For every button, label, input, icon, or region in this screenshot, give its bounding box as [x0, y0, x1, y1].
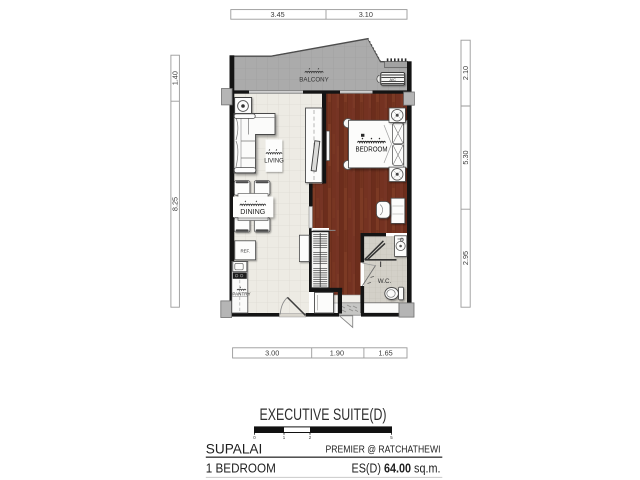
svg-text:1 BEDROOM: 1 BEDROOM: [206, 460, 276, 475]
svg-text:BALCONY: BALCONY: [299, 77, 329, 84]
svg-text:SUPALAI: SUPALAI: [206, 441, 262, 456]
svg-text:3.45: 3.45: [270, 10, 284, 19]
svg-text:5: 5: [390, 435, 393, 440]
svg-text:PANTRY: PANTRY: [232, 291, 250, 296]
svg-text:W.C.: W.C.: [378, 279, 392, 285]
svg-text:1.65: 1.65: [378, 348, 392, 357]
svg-text:2.10: 2.10: [461, 66, 470, 80]
svg-text:REF.: REF.: [240, 248, 250, 253]
svg-text:3.10: 3.10: [359, 10, 373, 19]
svg-text:1.40: 1.40: [171, 71, 180, 85]
svg-text:BEDROOM: BEDROOM: [356, 145, 388, 154]
svg-text:3.00: 3.00: [265, 348, 279, 357]
svg-text:A/C: A/C: [389, 77, 396, 82]
svg-text:5.30: 5.30: [461, 150, 470, 164]
svg-text:LIVING: LIVING: [264, 159, 284, 165]
svg-text:PREMIER @ RATCHATHEWI: PREMIER @ RATCHATHEWI: [326, 445, 441, 456]
svg-text:1.90: 1.90: [330, 348, 344, 357]
svg-text:ES(D) 64.00 sq.m.: ES(D) 64.00 sq.m.: [352, 460, 441, 475]
svg-text:2.95: 2.95: [461, 251, 470, 265]
svg-text:2: 2: [309, 435, 312, 440]
svg-text:DINING: DINING: [240, 209, 265, 216]
svg-text:8.25: 8.25: [171, 197, 180, 211]
svg-text:1: 1: [283, 435, 286, 440]
svg-text:0: 0: [253, 435, 256, 440]
svg-text:EXECUTIVE SUITE(D): EXECUTIVE SUITE(D): [260, 406, 387, 424]
